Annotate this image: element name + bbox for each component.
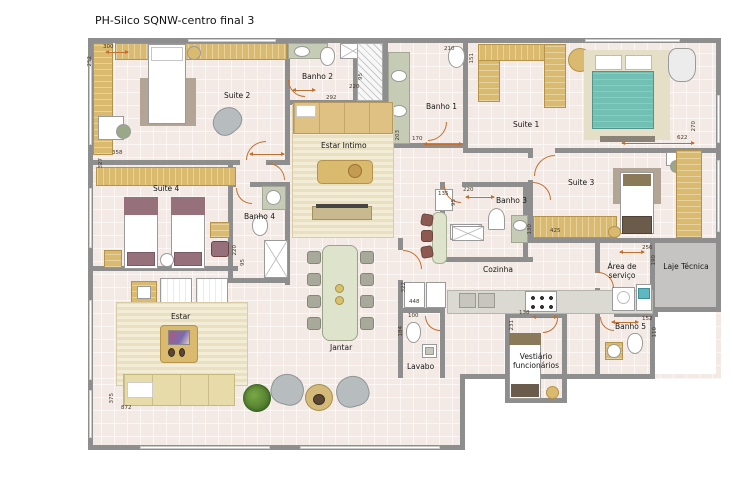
dimension-label: 95: [241, 259, 247, 266]
wardrobe: [676, 150, 702, 238]
cabinet: [426, 282, 446, 308]
table-decor: [313, 394, 325, 405]
storage-box: [210, 222, 230, 238]
window: [89, 300, 92, 380]
room-label-lavabo: Lavabo: [407, 363, 434, 372]
sink: [513, 220, 527, 231]
shower-box: [264, 240, 288, 278]
dimension-label: 95: [452, 199, 458, 206]
wall-segment: [463, 148, 533, 153]
room-label-cozinha: Cozinha: [483, 266, 513, 275]
window: [717, 160, 720, 232]
stove: [525, 291, 557, 312]
room-label-banho3: Banho 3: [496, 197, 527, 206]
dimension-arrow: [466, 197, 494, 198]
window: [585, 39, 680, 42]
room-label-suite3: Suite 3: [568, 179, 594, 188]
room-label-banho5: Banho 5: [615, 323, 646, 332]
closet: [544, 44, 566, 108]
chair: [360, 251, 374, 264]
window: [89, 390, 92, 438]
room-label-laje-tecnica: Laje Técnica: [663, 262, 709, 271]
dimension-label: 170: [412, 137, 423, 143]
pillow: [151, 47, 183, 61]
dimension-arrow: [424, 144, 462, 145]
ottoman: [211, 241, 229, 257]
footboard: [622, 216, 652, 234]
dimension-label: 184: [399, 326, 405, 337]
room-label-suite1: Suite 1: [513, 121, 539, 130]
side-table: [546, 386, 559, 399]
chair: [360, 295, 374, 308]
plant: [243, 384, 271, 412]
room-label-vestiario: Vestiário funcionários: [508, 352, 564, 370]
dimension-label: 448: [409, 300, 420, 306]
sink: [266, 190, 281, 205]
dimension-label: 872: [121, 406, 132, 412]
chair: [307, 295, 321, 308]
dimension-label: 95: [359, 73, 365, 80]
dimension-label: 220: [463, 188, 474, 194]
desk-chair: [116, 124, 131, 139]
dimension-label: 256: [642, 246, 653, 252]
outside-area: [655, 312, 716, 374]
dimension-label: 220: [233, 245, 239, 256]
room-label-suite2: Suite 2: [224, 92, 250, 101]
wall-segment: [528, 238, 721, 243]
washer-door: [617, 291, 630, 304]
window: [89, 60, 92, 145]
sink: [425, 347, 434, 355]
plan-title: PH-Silco SQNW-centro final 3: [95, 14, 254, 27]
table-lamp: [160, 253, 174, 267]
pillow: [595, 55, 622, 70]
room-label-area-servico: Área de serviço: [596, 262, 648, 280]
toilet: [488, 208, 505, 230]
dimension-label: 210: [444, 47, 455, 53]
dimension-label: 152: [642, 317, 653, 323]
breakfast-table: [432, 212, 447, 264]
decor-bottle: [179, 348, 185, 357]
tv-console: [312, 206, 372, 220]
side-table: [104, 250, 122, 268]
dimension-label: 151: [470, 53, 476, 64]
dimension-arrow: [533, 317, 557, 318]
floor-plan: PH-Silco SQNW-centro final 3: [0, 0, 733, 480]
wall-segment: [595, 312, 600, 374]
window: [188, 39, 276, 42]
dimension-label: 327: [99, 158, 105, 169]
chair: [360, 317, 374, 330]
tv: [316, 204, 368, 208]
dining-table: [322, 245, 358, 341]
sink: [607, 344, 621, 358]
room-label-banho2: Banho 2: [302, 73, 333, 82]
toilet: [320, 47, 335, 66]
dimension-label: 622: [677, 136, 688, 142]
double-bed: [592, 71, 654, 129]
bed-runner: [600, 136, 655, 142]
wall-segment: [398, 238, 403, 250]
loveseat: [160, 278, 192, 303]
laje-tecnica-slab: [655, 243, 716, 307]
wall-segment: [460, 374, 655, 379]
loveseat: [196, 278, 228, 303]
duct-shaft: [357, 43, 383, 101]
pillow: [625, 55, 652, 70]
dimension-label: 292: [326, 96, 337, 102]
dimension-label: 425: [550, 229, 561, 235]
headboard: [171, 197, 205, 215]
dimension-arrow: [622, 143, 694, 144]
sink: [391, 70, 407, 82]
headboard: [509, 333, 541, 345]
footboard: [511, 384, 539, 397]
dimension-label: 190: [652, 255, 658, 266]
window: [300, 446, 440, 449]
laundry-tank: [638, 288, 650, 299]
bench: [668, 48, 696, 82]
chair: [420, 245, 434, 259]
chair: [360, 273, 374, 286]
dimension-label: 138: [519, 311, 530, 317]
footboard: [174, 252, 202, 266]
room-label-jantar: Jantar: [330, 344, 352, 353]
dimension-label: 100: [408, 314, 419, 320]
bowl: [348, 164, 362, 178]
dimension-arrow: [293, 90, 315, 91]
sink: [294, 46, 310, 57]
wall-segment: [460, 378, 465, 450]
kitchen-island: [452, 226, 484, 241]
dimension-arrow: [250, 154, 284, 155]
pillow: [296, 105, 316, 117]
sink: [478, 293, 495, 308]
room-label-estar-intimo: Estar Intimo: [321, 142, 367, 151]
wardrobe: [533, 216, 617, 238]
dimension-label: 130: [528, 224, 534, 235]
window: [89, 188, 92, 248]
dimension-arrow: [106, 52, 128, 53]
wardrobe: [115, 43, 287, 60]
dimension-label: 220: [349, 85, 360, 91]
stool: [608, 226, 621, 238]
headboard: [124, 197, 158, 215]
dimension-label: 252: [88, 56, 94, 67]
wall-segment: [440, 257, 533, 262]
dimension-label: 322: [402, 282, 408, 293]
sink: [459, 293, 476, 308]
footboard: [127, 252, 155, 266]
wall-segment: [440, 313, 445, 378]
dimension-label: 270: [692, 121, 698, 132]
window: [717, 95, 720, 143]
dimension-label: 231: [510, 320, 516, 331]
chair: [307, 251, 321, 264]
toilet: [406, 322, 421, 343]
chair: [307, 273, 321, 286]
wall-segment: [228, 278, 290, 283]
dimension-label: 375: [110, 393, 116, 404]
dimension-label: 110: [653, 327, 659, 338]
bedside-lamp: [187, 46, 201, 60]
dimension-label: 300: [103, 45, 114, 51]
wall-segment: [88, 160, 240, 165]
art-book: [168, 330, 190, 345]
room-label-banho4: Banho 4: [244, 213, 275, 222]
room-label-suite4: Suite 4: [153, 185, 179, 194]
dimension-arrow: [620, 252, 644, 253]
wall-segment: [528, 148, 533, 158]
dimension-label: 135: [438, 192, 449, 198]
wall-segment: [650, 307, 721, 312]
toilet: [627, 333, 643, 354]
wall-segment: [398, 308, 445, 313]
window: [140, 446, 270, 449]
pillow: [623, 174, 651, 186]
room-label-estar: Estar: [171, 313, 190, 322]
dimension-label: 203: [396, 130, 402, 141]
dimension-label: 358: [112, 151, 123, 157]
blanket: [127, 382, 153, 398]
wall-segment: [285, 100, 290, 162]
room-label-banho1: Banho 1: [426, 103, 457, 112]
chair: [421, 230, 433, 242]
decor-bottle: [168, 348, 175, 357]
centerpiece: [335, 284, 344, 293]
chair: [420, 213, 434, 227]
centerpiece: [335, 296, 344, 305]
tv: [137, 286, 151, 299]
coffee-table: [317, 160, 373, 184]
chair: [307, 317, 321, 330]
